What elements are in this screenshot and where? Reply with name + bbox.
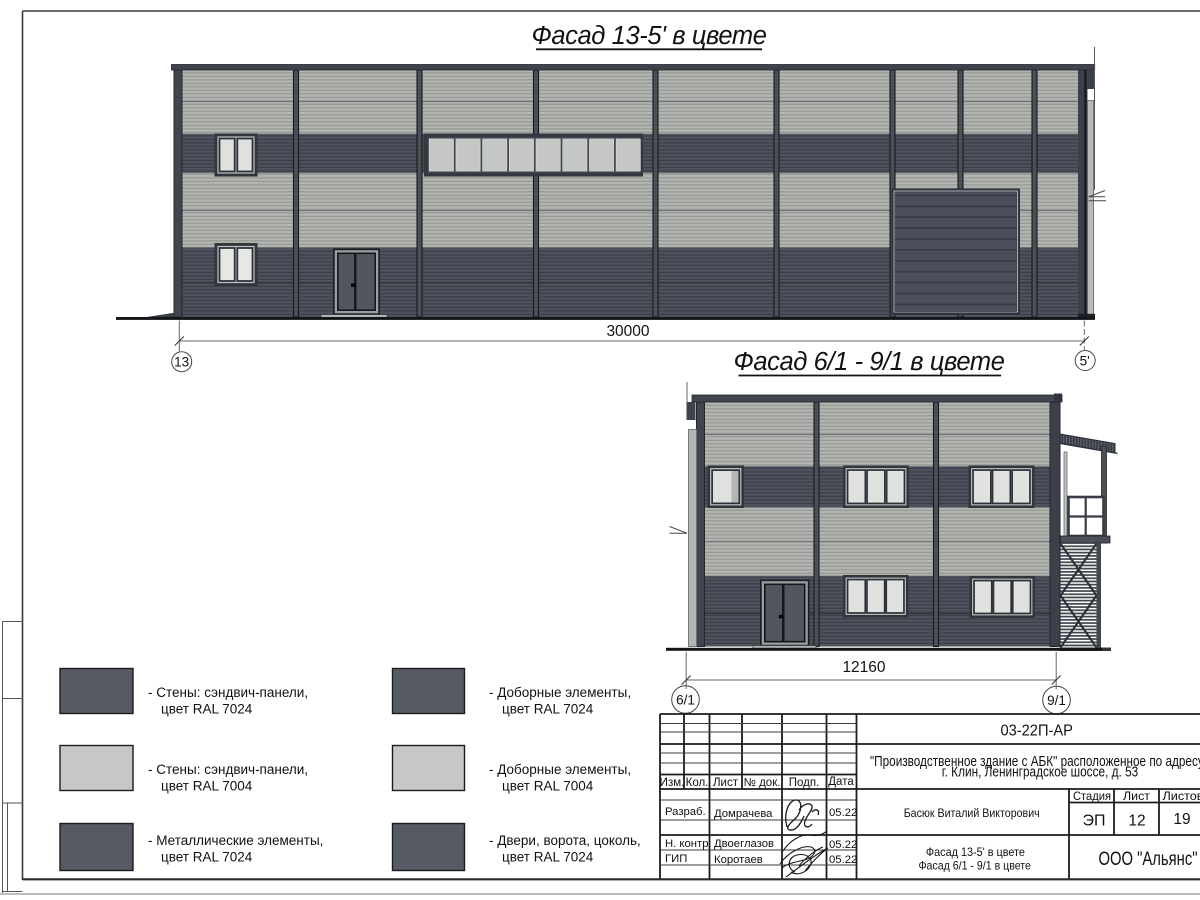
svg-text:Листов: Листов: [1163, 789, 1200, 803]
svg-text:12160: 12160: [842, 659, 885, 676]
svg-text:ООО "Альянс": ООО "Альянс": [1099, 849, 1198, 870]
svg-text:ЭП: ЭП: [1083, 813, 1106, 830]
svg-text:цвет RAL 7004: цвет RAL 7004: [502, 779, 594, 794]
svg-text:- Доборные элементы,: - Доборные элементы,: [489, 685, 631, 700]
svg-text:6/1: 6/1: [676, 693, 695, 708]
svg-text:Басюк Виталий Викторович: Басюк Виталий Викторович: [904, 806, 1040, 820]
svg-text:12: 12: [1128, 813, 1145, 830]
svg-text:цвет RAL 7004: цвет RAL 7004: [161, 779, 253, 794]
svg-text:13: 13: [174, 355, 189, 370]
svg-text:Фасад 13-5' в цвете: Фасад 13-5' в цвете: [926, 845, 1025, 859]
svg-text:- Стены: сэндвич-панели,: - Стены: сэндвич-панели,: [148, 762, 308, 777]
svg-text:Подп.: Подп.: [789, 777, 820, 789]
svg-text:05.22: 05.22: [829, 839, 857, 851]
svg-text:цвет RAL 7024: цвет RAL 7024: [161, 702, 253, 717]
svg-text:Фасад 13-5' в цвете: Фасад 13-5' в цвете: [532, 22, 767, 50]
svg-text:30000: 30000: [606, 323, 649, 340]
svg-text:5': 5': [1080, 353, 1090, 368]
svg-text:Стадия: Стадия: [1073, 789, 1111, 803]
svg-text:Дата: Дата: [828, 776, 854, 788]
svg-text:- Двери, ворота, цоколь,: - Двери, ворота, цоколь,: [489, 833, 641, 848]
svg-text:ГИП: ГИП: [665, 853, 687, 865]
svg-text:Фасад 6/1 - 9/1 в цвете: Фасад 6/1 - 9/1 в цвете: [733, 348, 1004, 376]
svg-text:цвет RAL 7024: цвет RAL 7024: [502, 702, 594, 717]
svg-text:цвет RAL 7024: цвет RAL 7024: [161, 850, 253, 865]
svg-text:03-22П-АР: 03-22П-АР: [1000, 723, 1073, 740]
svg-text:Фасад 6/1 - 9/1 в цвете: Фасад 6/1 - 9/1 в цвете: [918, 859, 1031, 873]
svg-text:г. Клин, Ленинградское шоссе,: г. Клин, Ленинградское шоссе, д. 53: [942, 764, 1139, 781]
svg-text:- Доборные элементы,: - Доборные элементы,: [489, 762, 631, 777]
svg-text:Кол.: Кол.: [686, 777, 709, 789]
svg-text:Домрачева: Домрачева: [714, 808, 773, 820]
svg-text:Лист: Лист: [713, 777, 739, 789]
svg-text:Изм.: Изм.: [660, 777, 685, 789]
svg-text:- Металлические элементы,: - Металлические элементы,: [148, 833, 323, 848]
svg-text:05.22: 05.22: [829, 807, 857, 819]
svg-text:19: 19: [1173, 811, 1190, 828]
svg-text:Двоеглазов: Двоеглазов: [714, 838, 774, 850]
svg-text:9/1: 9/1: [1047, 693, 1066, 708]
svg-text:цвет RAL 7024: цвет RAL 7024: [502, 850, 594, 865]
svg-text:Коротаев: Коротаев: [714, 854, 763, 866]
svg-text:05.22: 05.22: [829, 854, 857, 866]
svg-text:Лист: Лист: [1123, 789, 1151, 803]
svg-text:- Стены: сэндвич-панели,: - Стены: сэндвич-панели,: [148, 685, 308, 700]
svg-text:Н. контр.: Н. контр.: [665, 838, 712, 850]
svg-text:№ док.: № док.: [744, 777, 781, 789]
svg-text:Разраб.: Разраб.: [665, 806, 706, 818]
